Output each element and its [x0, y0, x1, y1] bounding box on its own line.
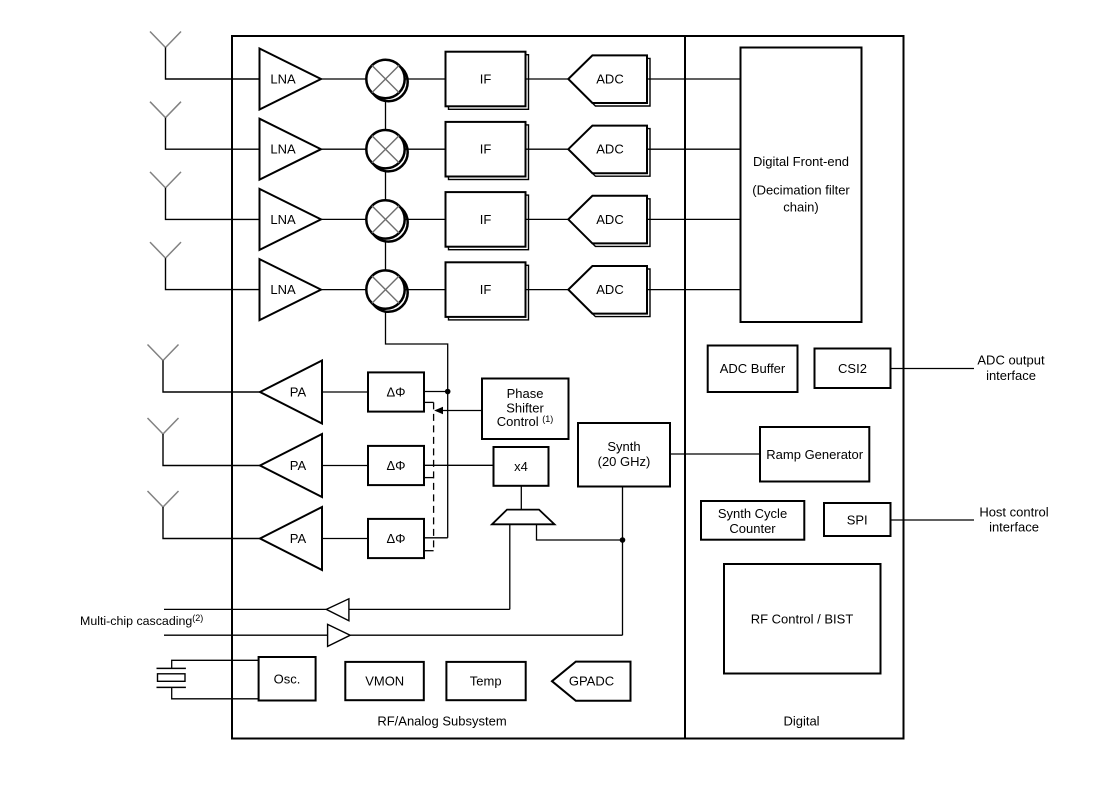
svg-text:Host control: Host control [979, 505, 1048, 520]
svg-text:Osc.: Osc. [274, 672, 301, 687]
svg-text:Multi-chip cascading(2): Multi-chip cascading(2) [80, 613, 203, 628]
svg-text:ADC: ADC [596, 72, 623, 87]
svg-text:RF/Analog Subsystem: RF/Analog Subsystem [377, 714, 506, 729]
svg-text:ADC: ADC [596, 282, 623, 297]
svg-text:Synth: Synth [607, 439, 640, 454]
svg-text:Ramp Generator: Ramp Generator [766, 447, 863, 462]
svg-text:CSI2: CSI2 [838, 361, 867, 376]
svg-text:VMON: VMON [365, 674, 404, 689]
svg-text:LNA: LNA [270, 72, 296, 87]
svg-text:ADC output: ADC output [977, 353, 1045, 368]
svg-text:ADC Buffer: ADC Buffer [720, 361, 786, 376]
svg-text:ΔΦ: ΔΦ [386, 531, 405, 546]
svg-text:ADC: ADC [596, 142, 623, 157]
svg-text:PA: PA [290, 385, 307, 400]
svg-text:RF Control / BIST: RF Control / BIST [751, 612, 854, 627]
svg-text:(Decimation filter: (Decimation filter [752, 183, 850, 198]
svg-text:LNA: LNA [270, 212, 296, 227]
svg-text:LNA: LNA [270, 282, 296, 297]
svg-text:interface: interface [986, 368, 1036, 383]
svg-text:GPADC: GPADC [569, 674, 614, 689]
svg-text:ADC: ADC [596, 212, 623, 227]
svg-text:Digital: Digital [783, 714, 819, 729]
svg-text:x4: x4 [514, 459, 528, 474]
svg-text:PA: PA [290, 531, 307, 546]
svg-text:interface: interface [989, 520, 1039, 535]
svg-text:IF: IF [480, 142, 492, 157]
svg-text:Phase: Phase [507, 386, 544, 401]
svg-text:Digital Front-end: Digital Front-end [753, 154, 849, 169]
svg-text:IF: IF [480, 282, 492, 297]
svg-text:Counter: Counter [729, 521, 776, 536]
svg-text:chain): chain) [783, 200, 818, 215]
svg-text:LNA: LNA [270, 142, 296, 157]
svg-text:ΔΦ: ΔΦ [386, 458, 405, 473]
svg-text:ΔΦ: ΔΦ [386, 385, 405, 400]
svg-text:PA: PA [290, 458, 307, 473]
svg-text:Temp: Temp [470, 674, 502, 689]
svg-text:SPI: SPI [847, 512, 868, 527]
svg-text:(20 GHz): (20 GHz) [598, 454, 651, 469]
svg-text:IF: IF [480, 72, 492, 87]
svg-text:IF: IF [480, 212, 492, 227]
svg-text:Synth Cycle: Synth Cycle [718, 506, 787, 521]
